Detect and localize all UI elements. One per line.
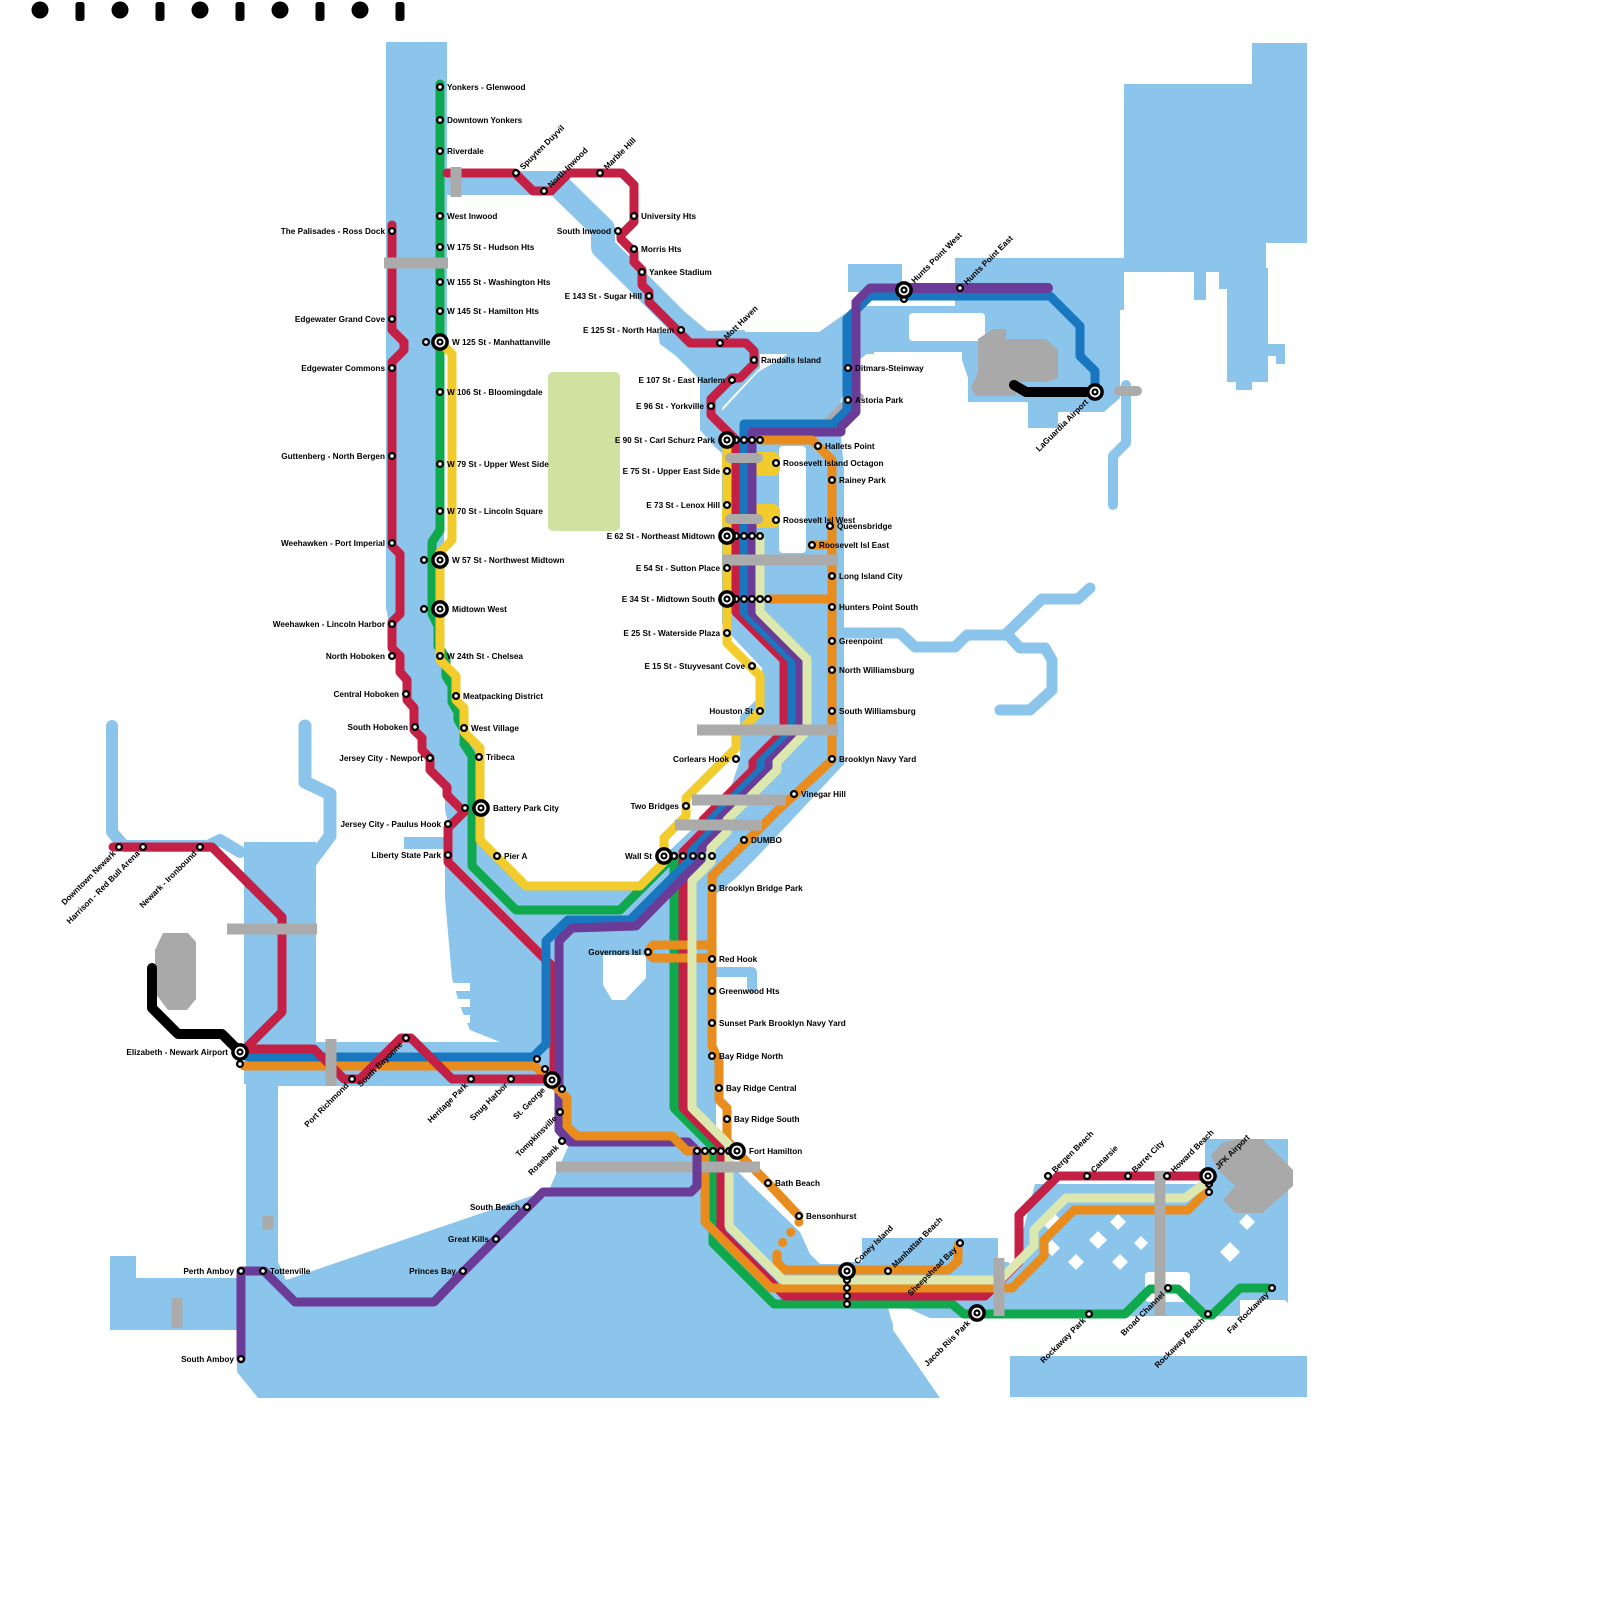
svg-text:Bensonhurst: Bensonhurst	[806, 1212, 857, 1221]
svg-text:University Hts: University Hts	[641, 212, 697, 221]
svg-text:E 73 St - Lenox Hill: E 73 St - Lenox Hill	[646, 501, 720, 510]
svg-text:Vinegar Hill: Vinegar Hill	[801, 790, 846, 799]
svg-text:W 79 St - Upper West Side: W 79 St - Upper West Side	[447, 460, 549, 469]
svg-text:Tribeca: Tribeca	[486, 753, 515, 762]
svg-text:Perth Amboy: Perth Amboy	[183, 1267, 234, 1276]
svg-text:Midtown West: Midtown West	[452, 605, 507, 614]
svg-text:Wall St: Wall St	[625, 852, 652, 861]
svg-text:W 145 St - Hamilton Hts: W 145 St - Hamilton Hts	[447, 307, 539, 316]
svg-text:Queensbridge: Queensbridge	[837, 522, 892, 531]
svg-text:W 70 St - Lincoln Square: W 70 St - Lincoln Square	[447, 507, 543, 516]
svg-text:E 34 St - Midtown South: E 34 St - Midtown South	[622, 595, 715, 604]
svg-text:Fort Hamilton: Fort Hamilton	[749, 1147, 802, 1156]
svg-text:Jersey City - Newport: Jersey City - Newport	[339, 754, 423, 763]
svg-text:Yankee Stadium: Yankee Stadium	[649, 268, 712, 277]
svg-text:Brooklyn Navy Yard: Brooklyn Navy Yard	[839, 755, 916, 764]
svg-text:W 57 St - Northwest Midtown: W 57 St - Northwest Midtown	[452, 556, 564, 565]
svg-text:DUMBO: DUMBO	[751, 836, 783, 845]
svg-text:E 25 St - Waterside Plaza: E 25 St - Waterside Plaza	[623, 629, 720, 638]
svg-text:E 90 St - Carl Schurz Park: E 90 St - Carl Schurz Park	[615, 436, 716, 445]
svg-text:Liberty State Park: Liberty State Park	[371, 851, 441, 860]
svg-text:Red Hook: Red Hook	[719, 955, 758, 964]
svg-text:Edgewater Grand Cove: Edgewater Grand Cove	[295, 315, 386, 324]
svg-text:South Williamsburg: South Williamsburg	[839, 707, 916, 716]
svg-text:Governors Isl: Governors Isl	[588, 948, 641, 957]
svg-text:W 24th St - Chelsea: W 24th St - Chelsea	[447, 652, 523, 661]
svg-text:Elizabeth - Newark Airport: Elizabeth - Newark Airport	[126, 1048, 228, 1057]
svg-text:W 155 St - Washington Hts: W 155 St - Washington Hts	[447, 278, 551, 287]
svg-text:Downtown Yonkers: Downtown Yonkers	[447, 116, 523, 125]
svg-text:E 15 St - Stuyvesant Cove: E 15 St - Stuyvesant Cove	[644, 662, 745, 671]
svg-text:Morris Hts: Morris Hts	[641, 245, 682, 254]
svg-text:Greenwood Hts: Greenwood Hts	[719, 987, 780, 996]
svg-text:Meatpacking District: Meatpacking District	[463, 692, 543, 701]
svg-text:Two Bridges: Two Bridges	[630, 802, 679, 811]
svg-text:Bath Beach: Bath Beach	[775, 1179, 820, 1188]
svg-text:Brooklyn Bridge Park: Brooklyn Bridge Park	[719, 884, 803, 893]
svg-text:West Village: West Village	[471, 724, 519, 733]
svg-text:Central Hoboken: Central Hoboken	[333, 690, 399, 699]
svg-text:Rainey Park: Rainey Park	[839, 476, 886, 485]
svg-text:Sunset Park Brooklyn Navy Yard: Sunset Park Brooklyn Navy Yard	[719, 1019, 846, 1028]
svg-text:E 143 St - Sugar Hill: E 143 St - Sugar Hill	[565, 292, 642, 301]
svg-text:South Hoboken: South Hoboken	[348, 723, 409, 732]
svg-text:Jersey City - Paulus Hook: Jersey City - Paulus Hook	[340, 820, 441, 829]
svg-text:E 96 St - Yorkville: E 96 St - Yorkville	[636, 402, 704, 411]
svg-text:E 54 St - Sutton Place: E 54 St - Sutton Place	[636, 564, 721, 573]
svg-text:West Inwood: West Inwood	[447, 212, 497, 221]
svg-text:Houston St: Houston St	[709, 707, 753, 716]
svg-text:Weehawken - Port Imperial: Weehawken - Port Imperial	[281, 539, 385, 548]
svg-text:Roosevelt Island Octagon: Roosevelt Island Octagon	[783, 459, 884, 468]
svg-text:Bay Ridge North: Bay Ridge North	[719, 1052, 783, 1061]
svg-text:South Inwood: South Inwood	[557, 227, 611, 236]
svg-text:Battery Park City: Battery Park City	[493, 804, 559, 813]
svg-text:Princes Bay: Princes Bay	[409, 1267, 456, 1276]
svg-text:Bay Ridge South: Bay Ridge South	[734, 1115, 800, 1124]
svg-text:E 125 St - North Harlem: E 125 St - North Harlem	[583, 326, 674, 335]
svg-text:Weehawken - Lincoln Harbor: Weehawken - Lincoln Harbor	[273, 620, 386, 629]
svg-text:Long Island City: Long Island City	[839, 572, 903, 581]
svg-text:North Hoboken: North Hoboken	[326, 652, 385, 661]
svg-text:The Palisades - Ross Dock: The Palisades - Ross Dock	[281, 227, 386, 236]
svg-text:Bay Ridge Central: Bay Ridge Central	[726, 1084, 797, 1093]
svg-text:Hunters Point South: Hunters Point South	[839, 603, 918, 612]
svg-text:Great Kills: Great Kills	[448, 1235, 489, 1244]
svg-text:Astoria Park: Astoria Park	[855, 396, 904, 405]
svg-text:E 75 St - Upper East Side: E 75 St - Upper East Side	[623, 467, 721, 476]
svg-text:Pier A: Pier A	[504, 852, 527, 861]
svg-text:Roosevelt Isl East: Roosevelt Isl East	[819, 541, 889, 550]
svg-text:E 107 St - East Harlem: E 107 St - East Harlem	[639, 376, 725, 385]
svg-text:Greenpoint: Greenpoint	[839, 637, 883, 646]
svg-text:Yonkers - Glenwood: Yonkers - Glenwood	[447, 83, 526, 92]
svg-text:Edgewater Commons: Edgewater Commons	[301, 364, 385, 373]
svg-text:W 125 St - Manhattanville: W 125 St - Manhattanville	[452, 338, 551, 347]
svg-text:Riverdale: Riverdale	[447, 147, 484, 156]
svg-text:Randalls Island: Randalls Island	[761, 356, 821, 365]
svg-text:Corlears Hook: Corlears Hook	[673, 755, 729, 764]
svg-text:Hallets Point: Hallets Point	[825, 442, 875, 451]
svg-text:W 175 St - Hudson Hts: W 175 St - Hudson Hts	[447, 243, 535, 252]
svg-text:Tottenville: Tottenville	[270, 1267, 311, 1276]
svg-text:South Beach: South Beach	[470, 1203, 520, 1212]
svg-text:E 62 St - Northeast Midtown: E 62 St - Northeast Midtown	[607, 532, 715, 541]
svg-text:Guttenberg - North Bergen: Guttenberg - North Bergen	[281, 452, 385, 461]
svg-text:Ditmars-Steinway: Ditmars-Steinway	[855, 364, 924, 373]
svg-text:North Williamsburg: North Williamsburg	[839, 666, 914, 675]
svg-text:South Amboy: South Amboy	[181, 1355, 234, 1364]
svg-text:W 106 St - Bloomingdale: W 106 St - Bloomingdale	[447, 388, 543, 397]
